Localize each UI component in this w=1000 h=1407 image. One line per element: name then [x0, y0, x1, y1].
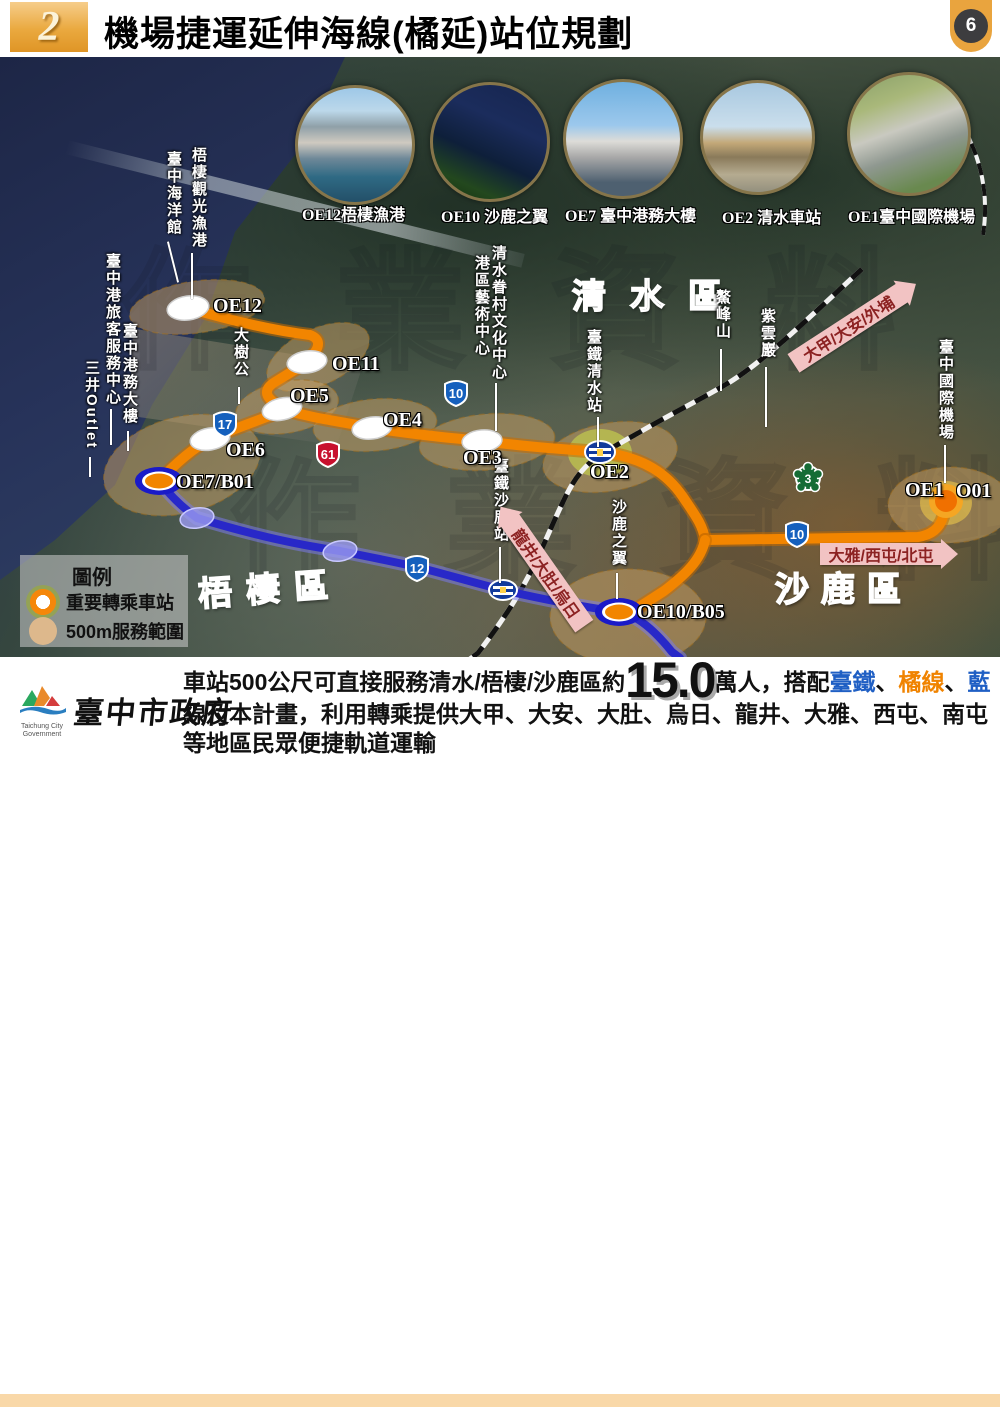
footer-delim: 、 [875, 669, 898, 695]
station-label-oe3: OE3 [463, 447, 502, 470]
poi-label-tra-qingshui: 臺鐵清水站 [583, 329, 604, 414]
poi-label-ziyun: 紫雲巖 [757, 308, 778, 359]
pointer-line [495, 383, 497, 431]
pointer-line [616, 573, 618, 599]
legend-transfer-label: 重要轉乘車站 [66, 589, 174, 615]
pointer-line [765, 367, 767, 427]
legend-range-label: 500m服務範圍 [66, 618, 184, 644]
station-label-oe1: OE1 [905, 479, 944, 502]
footer: 車站500公尺可直接服務清水/梧棲/沙鹿區約15.0萬人，搭配臺鐵、橘線、藍線及… [0, 657, 1000, 750]
footer-seg3: 線及本計畫，利用轉乘提供大甲、大安、大肚、烏日、龍井、大雅、西屯、南屯等地區民眾… [183, 701, 988, 756]
pointer-line [110, 409, 112, 445]
photo-caption: OE2 清水車站 [722, 204, 821, 228]
poi-label-mitsui: 三井Outlet [81, 360, 102, 449]
logo-english-text: Taichung City Government [16, 723, 68, 738]
page-number-tab: 6 [950, 0, 992, 52]
road-sign-text: 大雅/西屯/北屯 [829, 542, 934, 566]
footer-orange-line: 橘線 [898, 669, 944, 695]
page-title: 機場捷運延伸海線(橘延)站位規劃 [104, 6, 633, 57]
map-canvas: 作業資料 作業資料 [0, 57, 1000, 657]
station-label-oe5: OE5 [290, 385, 329, 408]
poi-label-shalu-wing: 沙鹿之翼 [608, 499, 629, 567]
region-label-shalu: 沙鹿區 [775, 562, 913, 611]
footer-delim: 、 [944, 669, 967, 695]
station-label-oe7-b01: OE7/B01 [176, 471, 254, 494]
photo-oe10-shalu-wing [430, 82, 550, 202]
poi-label-airport: 臺中國際機場 [935, 339, 956, 441]
footer-blue-line: 藍 [967, 669, 990, 695]
poi-label-ocean-museum: 臺中海洋館 [163, 151, 184, 236]
poi-label-big-tree: 大樹公 [230, 327, 251, 378]
station-label-oe4: OE4 [383, 409, 422, 432]
photo-caption: OE7 臺中港務大樓 [565, 202, 696, 226]
arrow-right-icon [941, 539, 958, 569]
photo-caption: OE1臺中國際機場 [848, 203, 975, 227]
header: 2 機場捷運延伸海線(橘延)站位規劃 6 [0, 0, 1000, 57]
footer-population-number: 15.0 [625, 652, 714, 708]
taichung-logo-icon [16, 682, 68, 718]
station-label-o01: O01 [956, 480, 992, 503]
station-label-oe10-b05: OE10/B05 [637, 601, 725, 624]
footer-seg1: 車站500公尺可直接服務清水/梧棲/沙鹿區約 [183, 669, 625, 695]
poi-label-art-center: 港區藝術中心 [471, 255, 492, 357]
photo-caption: OE10 沙鹿之翼 [441, 203, 548, 227]
slide-number-box: 2 [10, 2, 88, 52]
footer-text: 車站500公尺可直接服務清水/梧棲/沙鹿區約15.0萬人，搭配臺鐵、橘線、藍線及… [183, 660, 998, 758]
legend: 圖例 重要轉乘車站 500m服務範圍 [20, 555, 188, 647]
pointer-line [127, 431, 129, 451]
logo-chinese-text: 臺中市政府 [72, 688, 237, 732]
photo-oe12-wuqi-fishing-port [295, 85, 415, 205]
pointer-line [597, 417, 599, 447]
road-sign-daya: 大雅/西屯/北屯 [820, 543, 942, 565]
pointer-line [499, 547, 501, 583]
station-label-oe6: OE6 [226, 439, 265, 462]
photo-oe1-airport [847, 72, 971, 196]
slide-number: 2 [39, 3, 60, 51]
poi-label-aofeng: 鰲峰山 [712, 289, 733, 340]
station-label-oe12: OE12 [213, 295, 262, 318]
station-label-oe2: OE2 [590, 461, 629, 484]
photo-caption: OE12梧棲漁港 [302, 201, 405, 225]
pointer-line [89, 457, 91, 477]
station-label-oe11: OE11 [332, 353, 380, 376]
poi-label-port-building: 臺中港務大樓 [119, 323, 140, 425]
poi-label-wuqi-fishing: 梧棲觀光漁港 [188, 147, 209, 249]
footer-seg2: 萬人，搭配 [714, 669, 829, 695]
service-range-icon [29, 617, 57, 645]
footer-tra: 臺鐵 [829, 669, 875, 695]
pointer-line [944, 445, 946, 483]
region-label-wuqi: 梧棲區 [196, 557, 343, 616]
pointer-line [238, 387, 240, 404]
page-number: 6 [954, 9, 988, 43]
transfer-station-icon [26, 585, 60, 619]
city-government-logo: Taichung City Government 臺中市政府 [16, 682, 234, 738]
photo-oe7-port-building [563, 79, 683, 199]
bottom-accent-strip [0, 1394, 1000, 1407]
pointer-line [191, 253, 193, 299]
pointer-line [720, 349, 722, 391]
photo-oe2-qingshui-station [700, 80, 815, 195]
